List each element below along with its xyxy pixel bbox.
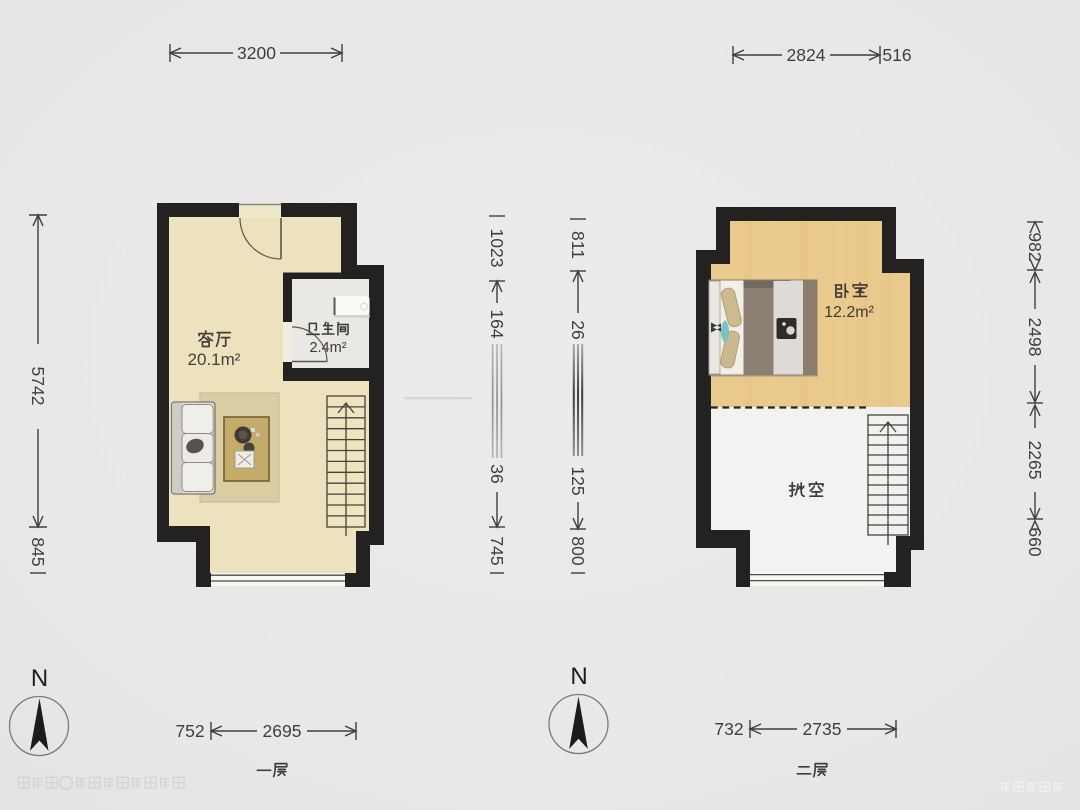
- svg-text:516: 516: [882, 45, 911, 65]
- svg-text:5742: 5742: [28, 367, 48, 406]
- svg-text:36: 36: [487, 464, 507, 483]
- svg-text:982: 982: [1025, 232, 1045, 261]
- svg-text:2824: 2824: [787, 45, 826, 65]
- svg-text:N: N: [31, 665, 48, 692]
- svg-text:800: 800: [568, 536, 588, 565]
- svg-text:12.2m²: 12.2m²: [824, 304, 874, 321]
- svg-text:164: 164: [487, 309, 507, 338]
- svg-text:2265: 2265: [1025, 441, 1045, 480]
- svg-text:845: 845: [28, 537, 48, 566]
- svg-text:N: N: [570, 663, 587, 690]
- svg-text:2735: 2735: [803, 719, 842, 739]
- svg-text:2.4m²: 2.4m²: [309, 340, 346, 356]
- svg-text:26: 26: [568, 320, 588, 339]
- svg-text:732: 732: [714, 719, 743, 739]
- svg-text:2498: 2498: [1025, 318, 1045, 357]
- svg-text:125: 125: [568, 466, 588, 495]
- svg-text:752: 752: [175, 721, 204, 741]
- svg-text:20.1m²: 20.1m²: [188, 350, 241, 369]
- svg-text:745: 745: [487, 536, 507, 565]
- svg-text:811: 811: [568, 231, 588, 259]
- svg-text:3200: 3200: [237, 43, 276, 63]
- svg-text:660: 660: [1025, 527, 1045, 556]
- svg-text:2695: 2695: [263, 721, 302, 741]
- svg-text:1023: 1023: [487, 229, 507, 268]
